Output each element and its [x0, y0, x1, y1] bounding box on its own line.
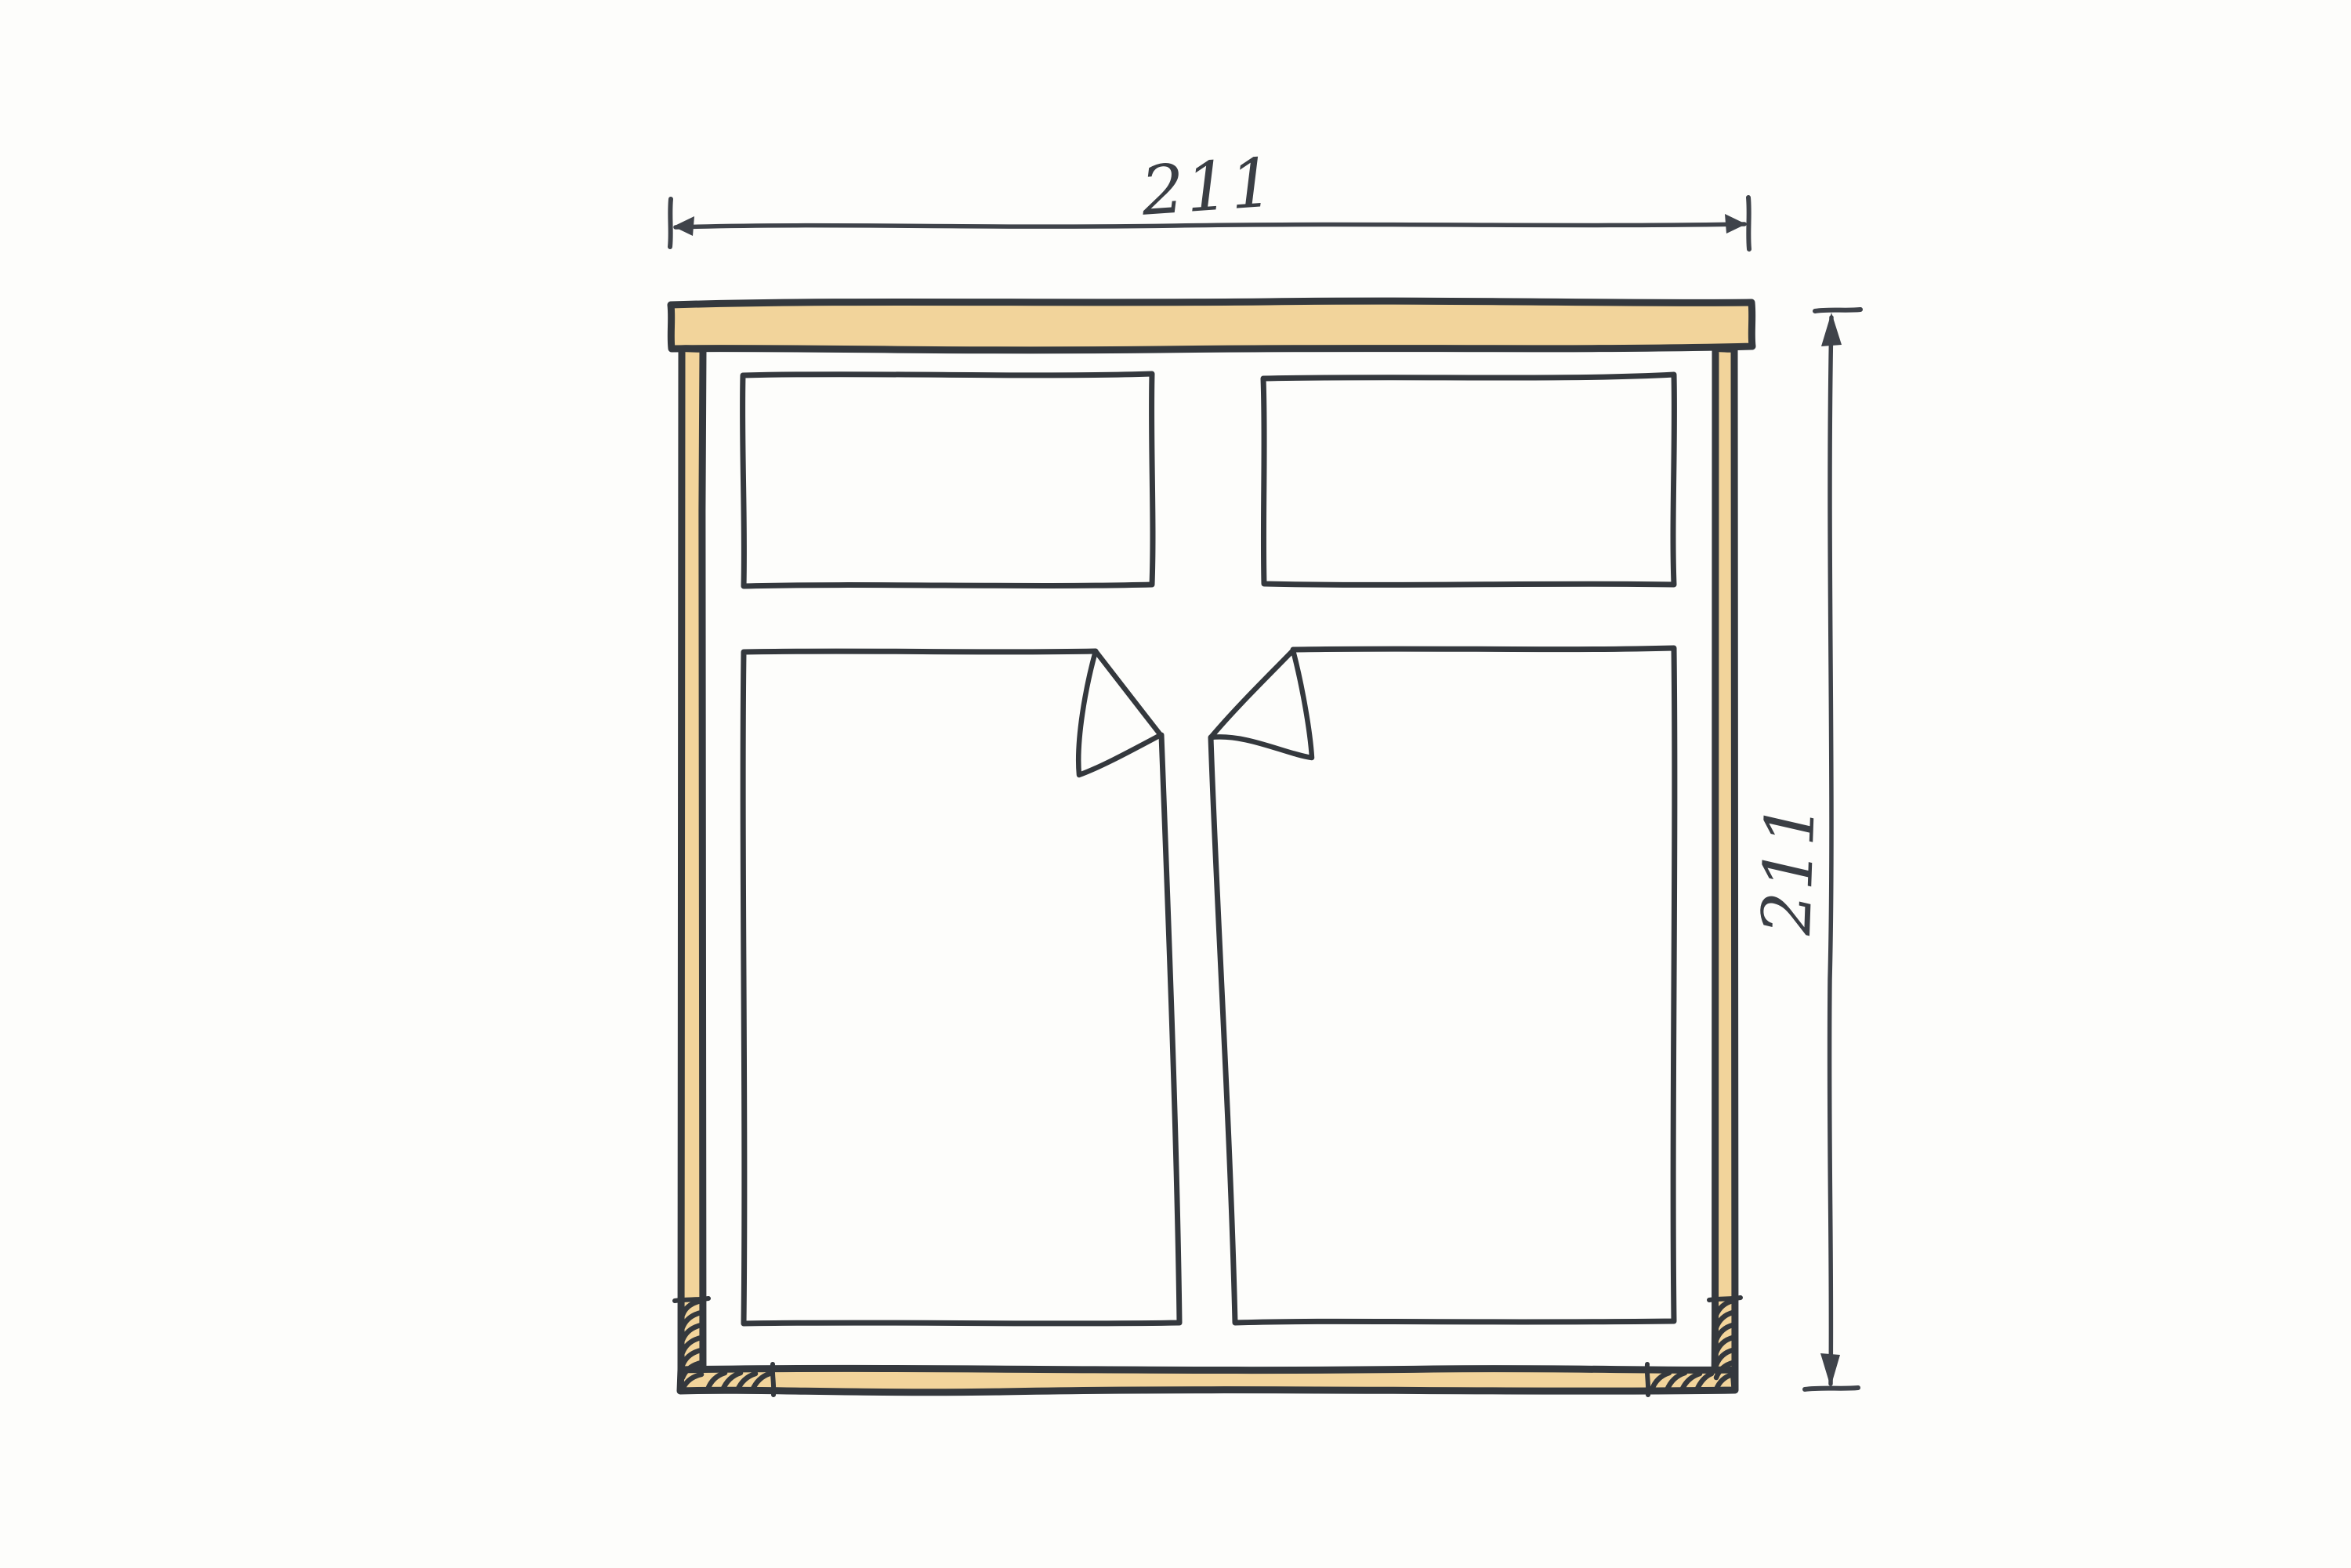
- frame-top-rail: [671, 301, 1752, 350]
- hatch-boundary-tick-right-rail: [1647, 1364, 1648, 1395]
- frame-left-stile: [681, 349, 704, 1390]
- dimension-width-arrow-right-icon: [1725, 214, 1746, 234]
- window-frame: [671, 301, 1752, 1395]
- pane-upper-right: [1263, 375, 1674, 585]
- dimension-height-tick-bottom: [1805, 1388, 1858, 1389]
- dimension-width-arrow-left-icon: [673, 216, 694, 236]
- dimension-height-tick-top: [1815, 310, 1860, 311]
- dimension-height-arrow-down-icon: [1820, 1353, 1840, 1387]
- pane-upper-left: [743, 374, 1153, 586]
- window-sketch-svg: 211 211: [0, 0, 2351, 1568]
- dimension-height-label: 211: [1748, 800, 1831, 937]
- opening-flag-left: [1078, 651, 1161, 775]
- dimension-height-arrow-up-icon: [1821, 313, 1842, 346]
- hatch-boundary-tick-right-stile: [1709, 1298, 1741, 1300]
- dimension-height-line: [1830, 317, 1831, 1384]
- sketch-canvas: 211 211: [0, 0, 2351, 1568]
- dimension-width-label: 211: [1138, 143, 1277, 231]
- opening-flag-right: [1211, 650, 1312, 758]
- frame-bottom-rail: [680, 1368, 1735, 1392]
- dimension-width: 211: [670, 143, 1749, 249]
- dimension-height: 211: [1748, 310, 1860, 1389]
- glazing: [743, 374, 1675, 1324]
- frame-right-stile: [1715, 349, 1736, 1389]
- dimension-width-tick-left: [670, 199, 671, 247]
- dimension-width-tick-right: [1748, 197, 1749, 249]
- hatch-boundary-tick-left-rail: [773, 1364, 773, 1395]
